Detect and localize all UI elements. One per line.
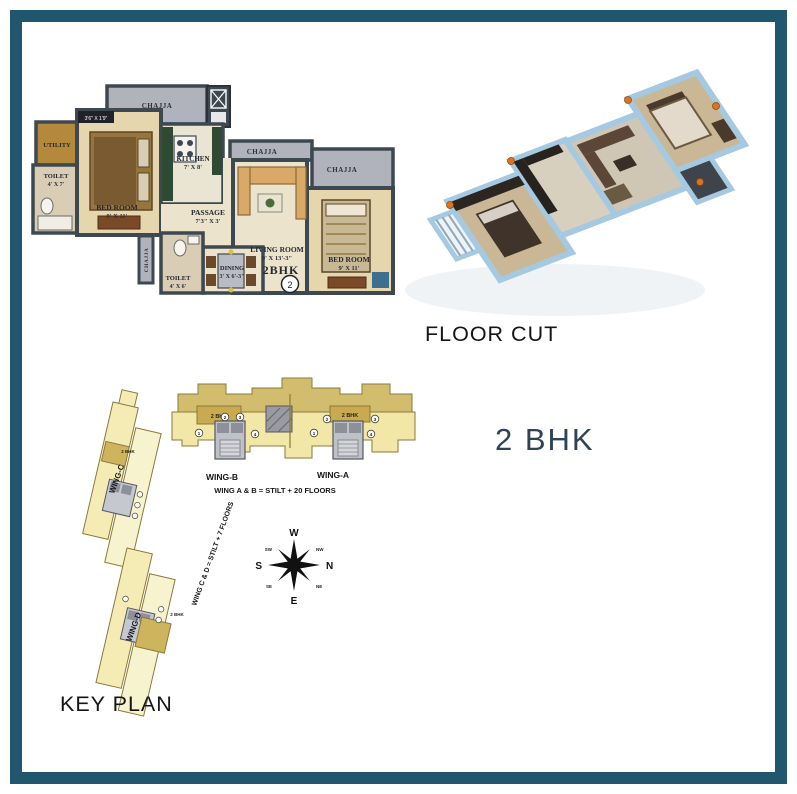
living-label: LIVING ROOM: [250, 245, 304, 254]
passage-label: PASSAGE: [191, 208, 225, 217]
bedroom-right-dim: 9' X 11': [339, 265, 360, 272]
chajja-label-2: CHAJJA: [247, 148, 278, 156]
chajja-label-4: CHAJJA: [144, 248, 150, 273]
floor-cut-heading: FLOOR CUT: [425, 322, 558, 346]
bedroom-left-label: BED ROOM: [96, 203, 137, 212]
wing-b-label: WING-B: [206, 472, 238, 482]
bedroom-left-dim: 9' X 11': [107, 213, 128, 220]
key-plan: 2 BHK 2 BHK 1: [77, 378, 415, 717]
living-dim: 9' X 13'-3": [262, 255, 292, 262]
floorcut-shadow: [405, 264, 705, 316]
compass-ne: NE: [316, 584, 322, 589]
wing-c-strip: [77, 388, 168, 568]
compass-rose-icon: W N E S SW NW SE NE: [255, 528, 333, 607]
compass-w: W: [289, 528, 299, 539]
duct-shaft: [207, 86, 230, 127]
kitchen-label: KITCHEN: [176, 155, 209, 163]
toilet-bottom-label: TOILET: [166, 275, 191, 282]
kitchen-dim: 7' X 8': [184, 164, 202, 171]
unit-number: 2: [287, 280, 292, 290]
wing-a-label: WING-A: [317, 470, 349, 480]
unit-type-heading: 2 BHK: [495, 422, 595, 457]
compass-s: S: [255, 561, 262, 572]
central-core-hatched: [266, 406, 292, 432]
toilet-bottom-dim: 4' X 6': [170, 284, 187, 290]
chajja-label-3: CHAJJA: [327, 166, 358, 174]
toilet-left-label: TOILET: [44, 173, 69, 180]
unit-type-label: 2BHK: [263, 263, 300, 277]
compass-nw: NW: [316, 547, 324, 552]
core-wing-a: [333, 421, 363, 459]
niche-dim-label: 3'6" X 1'9": [85, 116, 108, 122]
compass-sw: SW: [265, 547, 273, 552]
compass-se: SE: [266, 584, 272, 589]
chajja-label-1: CHAJJA: [142, 102, 173, 110]
bedroom-right-label: BED ROOM: [328, 255, 369, 264]
brochure-page: 3'6" X 1'9" CHAJJA CHAJJA CHAJJA CHAJJA …: [0, 0, 797, 794]
utility-label: UTILITY: [43, 142, 71, 149]
key-plan-heading: KEY PLAN: [60, 692, 173, 716]
passage-dim: 7'3" X 3': [196, 218, 221, 225]
unit-tag-wing-d: 2 BHK: [170, 612, 184, 617]
unit-tag-wing-a: 2 BHK: [342, 413, 359, 419]
core-wing-b: [215, 421, 245, 459]
dining-dim: 3' X 6'-3": [220, 274, 245, 280]
floor-cut-3d: [405, 72, 767, 316]
compass-e: E: [291, 596, 298, 607]
note-wing-ab: WING A & B = STILT + 20 FLOORS: [214, 486, 335, 495]
note-wing-cd: WING C & D = STILT + 7 FLOORS: [191, 501, 235, 607]
toilet-left-dim: 4' X 7': [48, 182, 65, 188]
floor-plan-2d: 3'6" X 1'9" CHAJJA CHAJJA CHAJJA CHAJJA …: [33, 86, 393, 293]
compass-n: N: [326, 561, 333, 572]
dining-label: DINING: [220, 265, 244, 272]
unit-tag-wing-c: 2 BHK: [121, 449, 135, 454]
